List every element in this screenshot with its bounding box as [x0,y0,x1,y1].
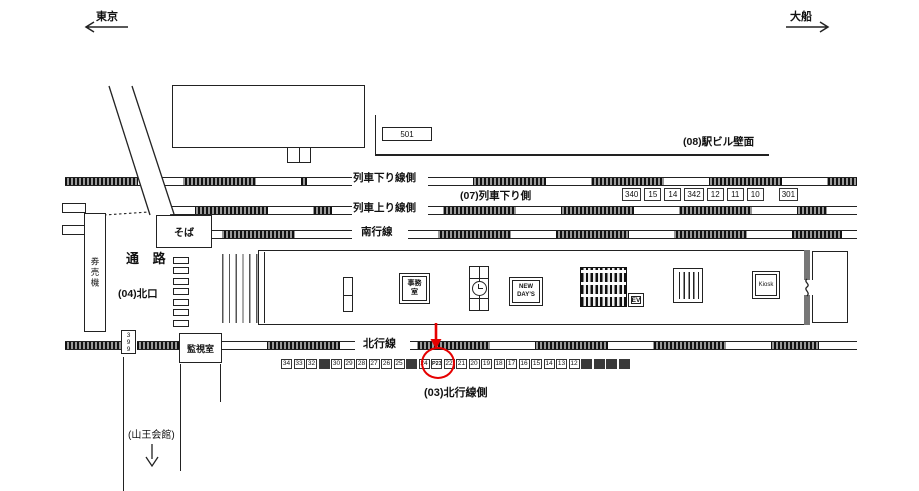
monitor-room: 監視室 [179,333,222,363]
sanno-exit-arrow-icon [146,444,158,466]
ad-board-blocked [594,359,605,369]
lower-ad-board-row: 34333230292827262524P2322212019181716151… [281,359,630,369]
track-train-up [170,206,352,215]
south-passage-wall-right [180,364,181,471]
ad-board-33: 33 [294,359,305,369]
sanno-hall-label: (山王会館) [128,426,175,441]
ad-board-blocked [619,359,630,369]
ad-board-blocked [319,359,330,369]
elevator: EV [628,293,644,307]
ad-board-28: 28 [356,359,367,369]
office-label-line2: 室 [411,289,418,297]
office-room: 事務 室 [399,273,430,304]
area-03-label: (03)北行線側 [424,384,488,400]
ad-board-blocked [581,359,592,369]
ad-board-34: 34 [281,359,292,369]
track-train-down-side-label: 列車下り線側 [353,170,416,185]
ad-board-27: 27 [369,359,380,369]
track-south-line-label: 南行線 [361,224,393,239]
track-north-line-w1 [65,341,121,350]
soba-shop: そば [156,215,212,248]
upper-ad-board-row: 3401514342121110301 [622,188,798,201]
station-building-wall-line [375,154,769,156]
track-north-line-label: 北行線 [363,335,396,351]
ad-board-15: 15 [644,188,661,201]
pillar-board [173,257,189,264]
platform-break-bar [804,250,810,325]
direction-ofuna-label: 大船 [790,8,812,24]
stairs-east [673,268,703,303]
wall-line-vertical [375,115,376,155]
track-train-up-side-label: 列車上り線側 [353,200,416,215]
platform-pillar [343,277,353,312]
ad-board-399: 399 [121,330,136,354]
ad-board-blocked [406,359,417,369]
highlight-circle [421,347,455,379]
ad-board-30: 30 [331,359,342,369]
track-south-line [212,230,352,239]
north-corridor [109,86,174,215]
ad-board-10: 10 [747,188,764,201]
pillar-board [173,320,189,327]
direction-tokyo-label: 東京 [96,8,118,24]
newdays-label-line1: NEW [519,284,533,291]
ad-board-342: 342 [684,188,703,201]
ad-board-18: 18 [494,359,505,369]
area-08-label: (08)駅ビル壁面 [683,134,754,149]
ad-board-14: 14 [664,188,681,201]
north-building-outline [172,85,365,148]
ad-board-blocked [606,359,617,369]
track-stub [62,203,86,213]
ad-board-14: 14 [544,359,555,369]
ad-board-501: 501 [382,127,432,141]
kiosk-shop: Kiosk [752,271,780,299]
ad-board-16: 16 [519,359,530,369]
pillar-board [173,309,189,316]
clock-icon [472,281,487,296]
south-passage-wall-left [123,357,124,491]
clock-stairs [469,266,489,311]
track-north-line-w3 [222,341,355,350]
ad-board-301: 301 [779,188,798,201]
ad-board-20: 20 [469,359,480,369]
ad-board-19: 19 [481,359,492,369]
pillar-board [173,278,189,285]
track-train-down-east [428,177,857,186]
area-04-label: (04)北口 [118,286,158,301]
ad-board-12: 12 [707,188,724,201]
newdays-label-line2: DAY’S [517,292,535,299]
area-07-label: (07)列車下り側 [460,188,531,203]
track-north-line-w2 [137,341,179,350]
ad-board-13: 13 [556,359,567,369]
track-train-up-east [428,206,857,215]
ad-board-15: 15 [531,359,542,369]
ad-board-17: 17 [506,359,517,369]
pillar-board [173,288,189,295]
track-stub [62,225,86,235]
diagram-lines [0,0,919,491]
platform-east-section [812,251,848,323]
small-structure [287,147,311,163]
ad-board-12: 12 [569,359,580,369]
track-south-line-east [408,230,857,239]
corridor-dashed-line [104,212,149,215]
diagram-overlay [0,0,919,491]
south-passage-wall-short [220,364,221,402]
ad-board-21: 21 [456,359,467,369]
station-layout-map: 東京 大船 列車下り線側 (07)列車下り側 列車上り線側 南行線 北行線 (0… [0,0,919,491]
platform-end-line [264,252,265,323]
ad-board-11: 11 [727,188,744,201]
ticket-machines-room: 券売機 [84,213,106,332]
newdays-shop: NEW DAY’S [509,277,543,306]
track-north-line-east [410,341,857,350]
ad-board-25: 25 [394,359,405,369]
stairs-west [222,254,258,323]
pillar-board [173,267,189,274]
stairs-center [580,267,627,307]
pillar-board [173,299,189,306]
ad-board-29: 29 [344,359,355,369]
corridor-wall-right [132,86,174,214]
office-label-line1: 事務 [408,280,422,288]
ad-board-32: 32 [306,359,317,369]
passage-label: 通 路 [126,248,171,267]
track-train-down [65,177,352,186]
ad-board-340: 340 [622,188,641,201]
ad-board-26: 26 [381,359,392,369]
corridor-wall-left [109,86,150,215]
